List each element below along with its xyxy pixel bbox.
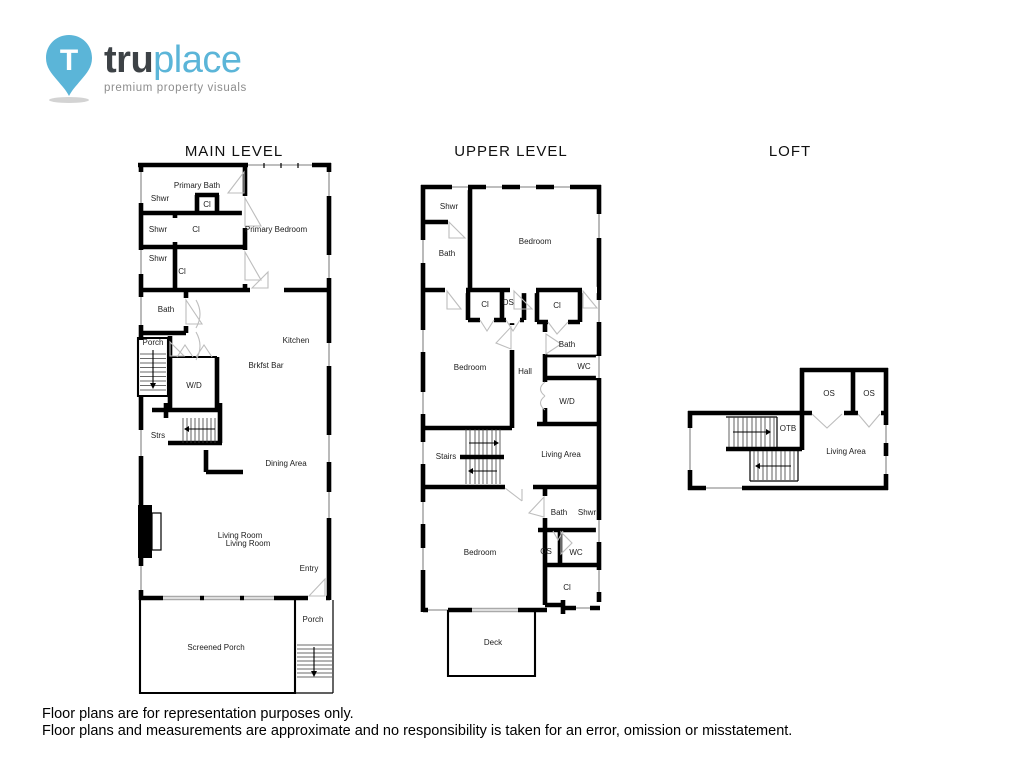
- windows-path: [690, 425, 886, 488]
- room-label: Shwr: [578, 508, 597, 517]
- room-label: Cl: [178, 267, 186, 276]
- level-title: MAIN LEVEL: [185, 143, 283, 160]
- room-label: Cl: [481, 300, 489, 309]
- room-label: Shwr: [149, 254, 168, 263]
- room-label: Bath: [559, 340, 575, 349]
- rear-porch-edge: [295, 600, 333, 693]
- stair-arrow-head: [755, 463, 760, 469]
- room-label: Bath: [158, 305, 174, 314]
- room-label: Hall: [518, 367, 532, 376]
- stair-arrow-head: [468, 468, 473, 474]
- stair-arrow-head: [494, 440, 499, 446]
- main-level-plan: Primary Bath Shwr Cl Shwr Cl Shwr Cl Pri…: [138, 163, 333, 693]
- room-label: Dining Area: [265, 459, 307, 468]
- room-label: Shwr: [440, 202, 459, 211]
- room-label: Deck: [484, 638, 503, 647]
- room-label: Bedroom: [519, 237, 552, 246]
- loft-plan: OS OS OTB Living Area: [688, 368, 888, 490]
- room-label: Living Room: [226, 539, 271, 548]
- level-title: UPPER LEVEL: [454, 143, 568, 160]
- room-label: OS: [502, 298, 514, 307]
- room-label: Cl: [192, 225, 200, 234]
- room-label: Porch: [303, 615, 324, 624]
- room-label: Brkfst Bar: [248, 361, 283, 370]
- floor-plan-page: T truplace premium property visuals MAIN…: [0, 0, 1024, 768]
- room-label: W/D: [559, 397, 575, 406]
- room-label: WC: [577, 362, 591, 371]
- room-label: Living Area: [541, 450, 581, 459]
- stair-arrow-head: [184, 426, 189, 432]
- rear-steps-arrow-head: [311, 671, 317, 677]
- room-label: Bedroom: [464, 548, 497, 557]
- room-label: Shwr: [151, 194, 170, 203]
- room-label: OS: [540, 547, 552, 556]
- room-label: Stairs: [436, 452, 456, 461]
- room-label: W/D: [186, 381, 202, 390]
- room-label: Cl: [203, 200, 211, 209]
- disclaimer: Floor plans are for representation purpo…: [42, 706, 792, 740]
- room-label: Bath: [439, 249, 455, 258]
- room-label: Strs: [151, 431, 165, 440]
- room-label: WC: [569, 548, 583, 557]
- disclaimer-line-2: Floor plans and measurements are approxi…: [42, 723, 792, 740]
- room-label: OS: [863, 389, 875, 398]
- room-label: Primary Bedroom: [245, 225, 308, 234]
- upper-level-plan: Shwr Bath Bedroom Cl OS Cl Bedroom Hall …: [421, 185, 601, 676]
- room-label: Screened Porch: [187, 643, 244, 652]
- porch-arrow-head: [150, 383, 156, 389]
- room-label: Cl: [553, 301, 561, 310]
- room-label: Bath: [551, 508, 567, 517]
- room-label: Bedroom: [454, 363, 487, 372]
- floor-plans-svg: MAIN LEVEL UPPER LEVEL LOFT: [0, 0, 1024, 768]
- fireplace-hearth: [152, 513, 161, 550]
- room-label: Primary Bath: [174, 181, 220, 190]
- fireplace: [138, 505, 152, 558]
- room-label: OTB: [780, 424, 796, 433]
- room-label: OS: [823, 389, 835, 398]
- room-label: Kitchen: [283, 336, 310, 345]
- room-label: Entry: [300, 564, 319, 573]
- level-title: LOFT: [769, 143, 811, 160]
- room-label: Living Area: [826, 447, 866, 456]
- disclaimer-line-1: Floor plans are for representation purpo…: [42, 706, 792, 723]
- room-label: Shwr: [149, 225, 168, 234]
- room-label: Porch: [143, 338, 164, 347]
- room-label: Cl: [563, 583, 571, 592]
